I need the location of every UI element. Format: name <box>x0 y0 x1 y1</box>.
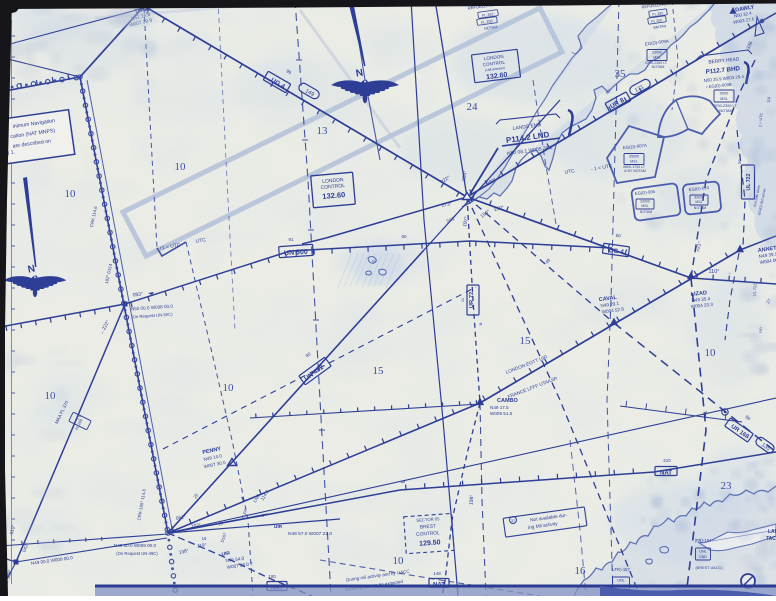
svg-text:129.50: 129.50 <box>419 539 441 547</box>
svg-text:10: 10 <box>223 382 235 394</box>
svg-text:60: 60 <box>401 234 407 239</box>
svg-text:13: 13 <box>317 125 329 137</box>
svg-text:N49 17.5: N49 17.5 <box>490 405 509 410</box>
svg-text:23: 23 <box>721 480 733 492</box>
svg-text:BREST: BREST <box>420 523 436 530</box>
svg-text:UL 722: UL 722 <box>746 173 752 190</box>
svg-text:UIR: UIR <box>221 550 231 557</box>
svg-text:(FR)-154: (FR)-154 <box>695 538 712 543</box>
svg-text:MSL: MSL <box>641 204 648 208</box>
svg-text:(On Request UN-49C): (On Request UN-49C) <box>116 551 158 556</box>
svg-text:16: 16 <box>575 565 587 577</box>
svg-text:N48 57.0 W007 22.0: N48 57.0 W007 22.0 <box>288 531 332 537</box>
svg-text:NOTAM: NOTAM <box>719 109 732 113</box>
svg-text:148: 148 <box>433 571 441 576</box>
svg-text:33000: 33000 <box>652 51 662 55</box>
svg-text:10: 10 <box>705 347 717 359</box>
svg-text:LFR)-157: LFR)-157 <box>612 567 630 572</box>
svg-text:MSL: MSL <box>720 97 728 101</box>
svg-text:N49 00.0 W009 00.0: N49 00.0 W009 00.0 <box>114 543 157 548</box>
svg-text:UNL: UNL <box>617 579 624 583</box>
svg-text:MSL: MSL <box>653 56 660 60</box>
svg-text:15: 15 <box>373 365 385 377</box>
svg-text:LAN: LAN <box>768 529 776 535</box>
svg-text:210: 210 <box>663 458 671 463</box>
svg-text:& BY NOTAM: & BY NOTAM <box>624 169 646 173</box>
svg-text:35000: 35000 <box>629 155 639 159</box>
svg-text:91: 91 <box>288 237 294 242</box>
svg-text:100: 100 <box>268 574 276 579</box>
svg-text:10: 10 <box>175 161 187 173</box>
svg-text:UIR: UIR <box>274 524 283 530</box>
svg-text:37: 37 <box>511 519 515 523</box>
svg-text:15: 15 <box>520 335 532 347</box>
svg-text:110: 110 <box>767 97 772 103</box>
svg-text:24: 24 <box>467 101 479 113</box>
svg-text:103°: 103° <box>191 522 202 529</box>
svg-text:W005 51.5: W005 51.5 <box>490 411 513 416</box>
svg-text:0700-2359 LT: 0700-2359 LT <box>713 104 737 108</box>
svg-text:093°: 093° <box>132 291 143 298</box>
svg-text:198°: 198° <box>469 494 476 505</box>
svg-text:5000: 5000 <box>720 92 728 96</box>
svg-text:(BREST UACC): (BREST UACC) <box>696 566 724 570</box>
svg-text:UNL: UNL <box>699 550 706 554</box>
svg-text:NOTAM: NOTAM <box>694 206 706 210</box>
svg-text:10: 10 <box>65 188 77 200</box>
svg-text:MSL: MSL <box>630 160 637 164</box>
svg-text:16: 16 <box>202 536 207 541</box>
svg-text:35: 35 <box>615 68 627 80</box>
svg-text:GND: GND <box>699 555 707 559</box>
svg-text:10: 10 <box>393 555 405 567</box>
svg-text:110°: 110° <box>709 269 720 275</box>
svg-text:33000: 33000 <box>640 200 650 204</box>
svg-text:33000: 33000 <box>694 196 704 200</box>
svg-text:NOTAM: NOTAM <box>640 210 652 214</box>
svg-text:NOTAM: NOTAM <box>652 65 665 69</box>
svg-text:→: → <box>727 270 732 276</box>
svg-text:MSL: MSL <box>695 200 702 204</box>
svg-text:NAT: NAT <box>660 471 672 477</box>
svg-text:UR 72: UR 72 <box>469 292 475 308</box>
